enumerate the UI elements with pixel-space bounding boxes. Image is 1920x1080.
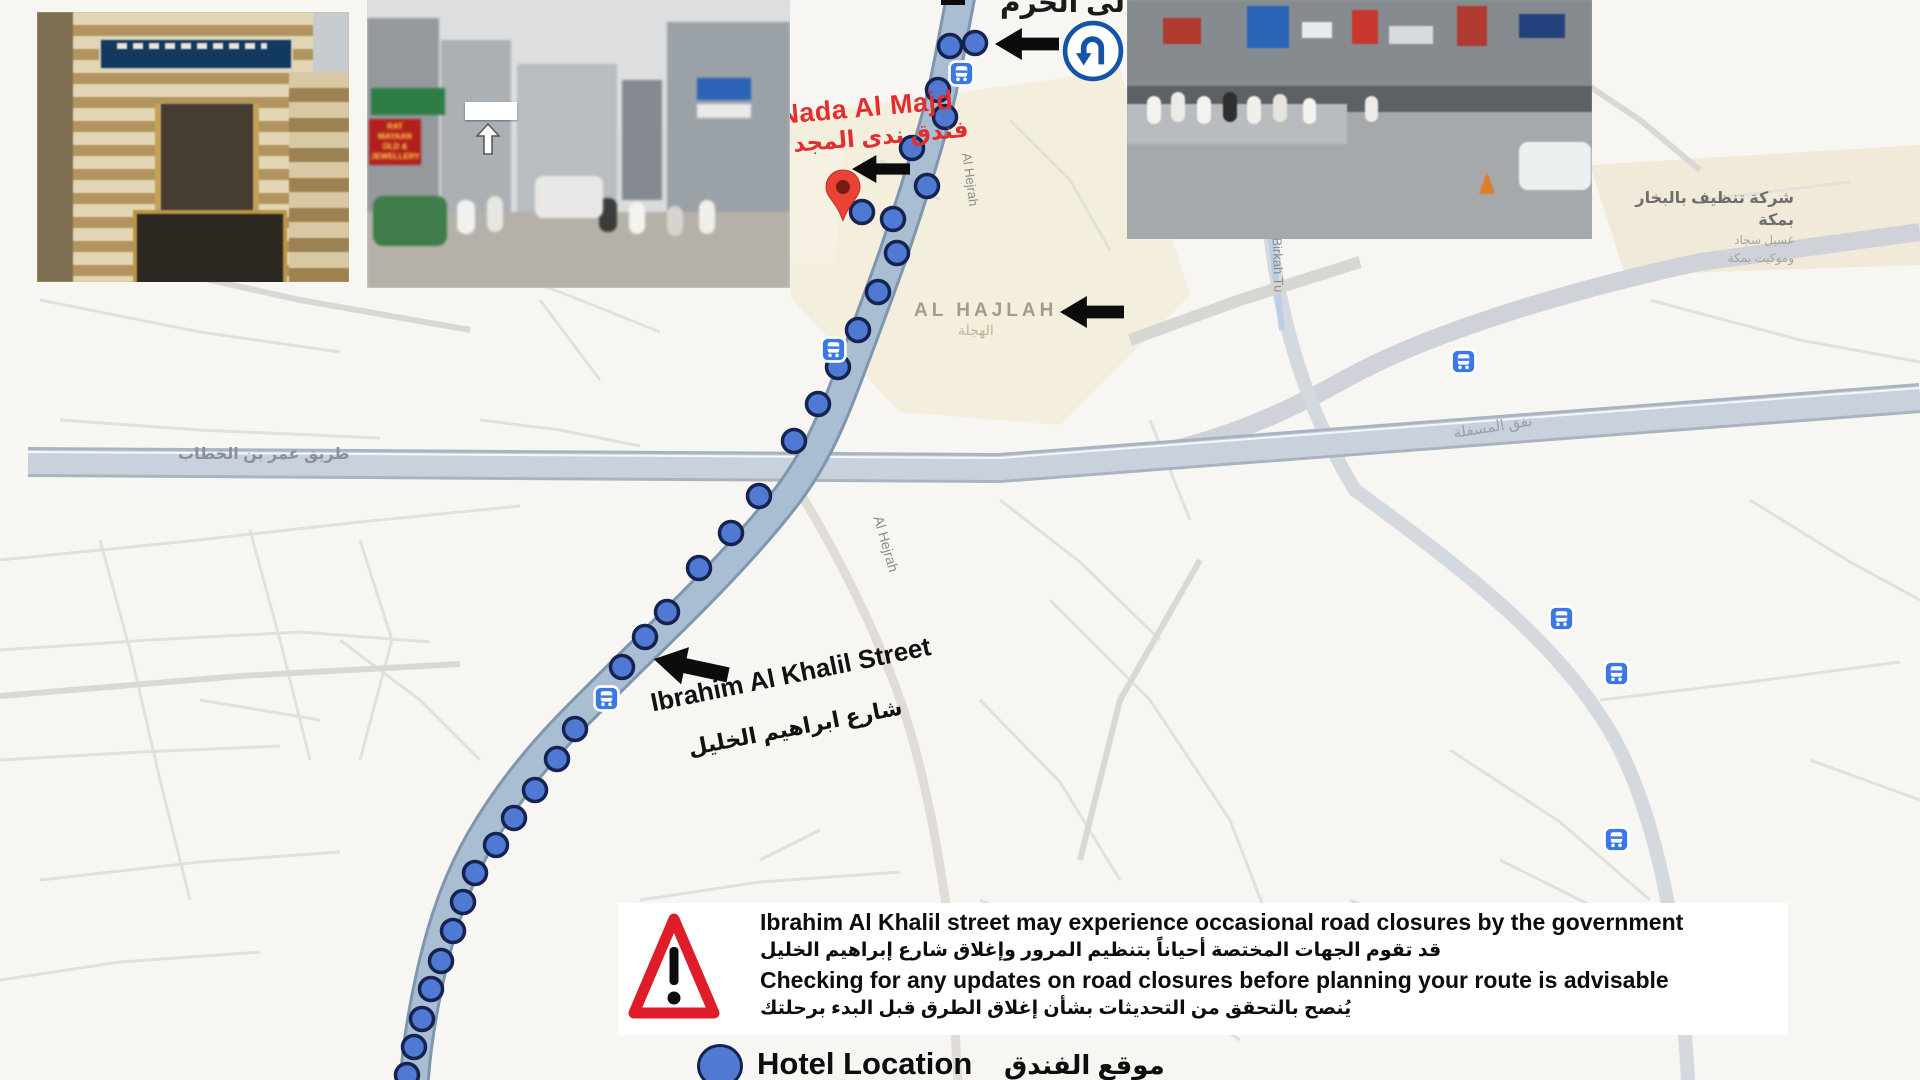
district-label-al-hajlah: AL HAJLAH — [914, 300, 1057, 322]
bus-stop-icon[interactable] — [1450, 348, 1477, 375]
photo-annotation-chip — [465, 102, 517, 120]
map-canvas[interactable]: طريق عمر بن الخطاب Al Hejrah Al Hejrah A… — [0, 0, 1920, 1080]
poi-sub2: وموكيت بمكة — [1598, 249, 1794, 267]
bus-stop-icon[interactable] — [820, 336, 847, 363]
bus-stop-icon[interactable] — [948, 60, 975, 87]
legend-hotel-label: Hotel Location — [757, 1046, 972, 1080]
poi-label-cleaning-company: شركة تنظيف بالبخار بمكة غسيل سجاد وموكيت… — [1598, 188, 1794, 267]
bus-stop-icon[interactable] — [1548, 605, 1575, 632]
crowd-street-photo — [1127, 0, 1592, 239]
legend-hotel-dot — [697, 1044, 743, 1080]
poi-sub1: غسيل سجاد — [1598, 231, 1794, 249]
road-closure-warning: Ibrahim Al Khalil street may experience … — [618, 903, 1788, 1035]
hotel-building-photo — [37, 12, 349, 282]
warning-triangle-icon — [628, 909, 720, 1027]
warning-line1-en: Ibrahim Al Khalil street may experience … — [760, 907, 1780, 937]
district-label-al-hajlah-ar: الهجلة — [958, 322, 994, 339]
shop-sign: RAT MAYAANOLD & JEWELLERY — [369, 119, 421, 165]
bus-stop-icon[interactable] — [1603, 826, 1630, 853]
bus-stop-icon[interactable] — [593, 685, 620, 712]
up-arrow-icon — [475, 122, 501, 156]
warning-line2-en: Checking for any updates on road closure… — [760, 965, 1780, 995]
cutoff-marker — [941, 0, 965, 5]
hotel-pin[interactable] — [822, 168, 864, 222]
street-view-photo: RAT MAYAANOLD & JEWELLERY — [367, 0, 790, 288]
u-turn-sign-icon — [1062, 20, 1124, 82]
warning-line1-ar: قد تقوم الجهات المختصة أحياناً بتنظيم ال… — [760, 937, 1780, 965]
legend-hotel-label-ar: موقع الفندق — [1004, 1050, 1165, 1080]
road-label-omar-bin-khattab: طريق عمر بن الخطاب — [178, 444, 350, 464]
warning-line2-ar: يُنصح بالتحقق من التحديثات بشأن إغلاق ال… — [760, 995, 1780, 1023]
poi-title: شركة تنظيف بالبخار بمكة — [1598, 188, 1794, 231]
destination-note-haram: إلى الحرم — [1000, 0, 1134, 19]
bus-stop-icon[interactable] — [1603, 660, 1630, 687]
